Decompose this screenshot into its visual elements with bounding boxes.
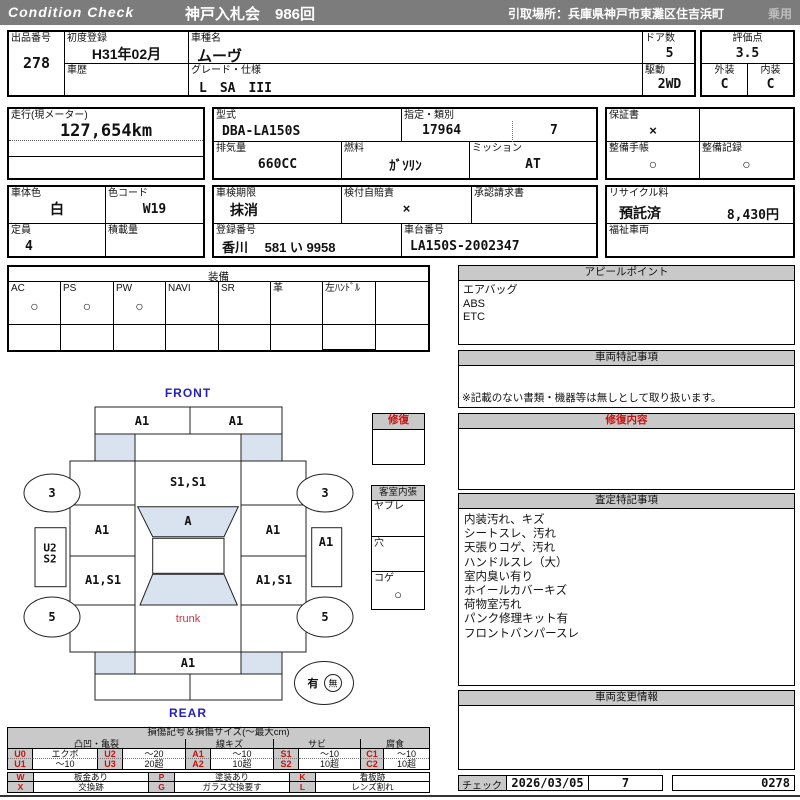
rear-label: REAR xyxy=(169,706,207,720)
field-label: 出品番号 xyxy=(9,32,64,45)
field-label: グレード・仕様 xyxy=(189,64,642,77)
equipment-label: 革 xyxy=(271,282,322,295)
equipment-label xyxy=(376,282,428,284)
field-label: 指定・類別 xyxy=(402,109,596,122)
equipment-cell: 革 xyxy=(271,282,323,325)
divider xyxy=(9,140,203,141)
field-color-code: 色コード W19 xyxy=(106,187,203,224)
equipment-label: AC xyxy=(9,282,60,295)
legend-code: C2 xyxy=(361,759,384,769)
sheet-code-box: 0278 xyxy=(672,775,795,791)
field-label: 整備手帳 xyxy=(607,142,699,155)
field-value: AT xyxy=(525,157,541,172)
field-model-code: 型式 DBA-LA150S xyxy=(214,109,402,142)
field-label: ミッション xyxy=(470,142,596,155)
tools-yes-label: 有 xyxy=(308,675,319,691)
equipment-empty-cell xyxy=(219,325,271,350)
mark-code: P xyxy=(149,773,175,782)
legend-code: U2 xyxy=(98,749,123,759)
mark-text: 塗装あり xyxy=(175,773,290,782)
equipment-label: PW xyxy=(114,282,165,295)
divider xyxy=(9,156,203,157)
front-glass-corner-right xyxy=(241,434,282,461)
field-label: 福祉車両 xyxy=(607,224,793,237)
mark-door-front-right: A1 xyxy=(266,523,280,537)
score-table: 評価点 3.5 外装 C 内装 C xyxy=(700,30,795,97)
field-label: 承認請求書 xyxy=(472,187,596,200)
equipment-empty-cell xyxy=(61,325,114,350)
field-value-2: 7 xyxy=(550,123,558,138)
mark-text: 交換跡 xyxy=(34,782,149,792)
field-label: 内装 xyxy=(748,64,793,77)
field-label: 保証書 xyxy=(607,109,699,122)
repair-mini-box: 修復 xyxy=(372,413,425,465)
field-status: 預託済 xyxy=(619,203,661,223)
mark-code: X xyxy=(8,782,34,792)
field-label: 燃料 xyxy=(342,142,469,155)
panel-title: 車両変更情報 xyxy=(459,691,794,706)
field-value-1: 17964 xyxy=(422,123,461,138)
equipment-title: 装備 xyxy=(9,267,428,282)
check-label: チェック xyxy=(459,776,507,790)
assessment-line: パンク修理キット有 xyxy=(464,612,789,626)
assessment-line: フロントバンパースレ xyxy=(464,627,789,641)
field-value: 3.5 xyxy=(736,46,759,61)
color-table: 車体色 白 色コード W19 定員 4 積載量 xyxy=(7,185,205,258)
rear-glass-corner-right xyxy=(241,652,282,674)
field-label: 車検期限 xyxy=(214,187,341,200)
field-label: 評価点 xyxy=(702,32,793,45)
assessment-line: 室内臭い有り xyxy=(464,570,789,584)
equipment-cell: NAVI xyxy=(166,282,219,325)
assessment-line: 内装汚れ、キズ xyxy=(464,513,789,527)
field-label: 登録番号 xyxy=(214,224,401,237)
legend-group: 線キズ xyxy=(186,739,274,749)
legend-size: 10超 xyxy=(211,759,274,769)
field-value: ○ xyxy=(742,156,750,172)
field-welfare: 福祉車両 xyxy=(607,224,793,256)
field-inspection: 車検期限 抹消 xyxy=(214,187,342,224)
field-value: DBA-LA150S xyxy=(214,124,300,139)
legend-size: エクボ xyxy=(33,749,98,759)
mark-door-front-left: A1 xyxy=(95,523,109,537)
equipment-label: NAVI xyxy=(166,282,218,295)
field-warranty: 保証書 × xyxy=(607,109,700,142)
assessment-line: ハンドルスレ（大） xyxy=(464,556,789,570)
field-label: 車種名 xyxy=(189,32,642,45)
special-notes-panel: 車両特記事項 ※記載のない書類・機器等は無しとして取り扱います。 xyxy=(458,350,795,408)
cabin-row-tear: ヤブレ xyxy=(372,500,424,537)
mark-text: ガラス交換要す xyxy=(175,782,290,792)
front-glass-corner-left xyxy=(95,434,135,461)
mark-code: L xyxy=(290,782,316,792)
repair-marks-table: W 板金あり P 塗装あり K 看板跡 X 交換跡 G ガラス交換要す L レン… xyxy=(7,772,430,793)
bottom-rule xyxy=(0,795,800,797)
change-info-panel: 車両変更情報 xyxy=(458,690,795,770)
field-recycle-fee: リサイクル料 預託済 8,430円 xyxy=(607,187,793,224)
equipment-mark: ○ xyxy=(9,295,60,317)
mark-rear-panel: A1 xyxy=(181,656,195,670)
legend-code: U0 xyxy=(8,749,33,759)
mark-front-bumper-left: A1 xyxy=(135,414,149,428)
mark-front-bumper-right: A1 xyxy=(229,414,243,428)
field-displacement: 排気量 660CC xyxy=(214,142,342,178)
repair-mini-title: 修復 xyxy=(373,414,424,430)
mark-code: G xyxy=(149,782,175,792)
check-row: チェック 2026/03/05 7 xyxy=(458,775,663,791)
legend-code: S1 xyxy=(274,749,299,759)
mileage-box: 走行(現メーター) 127,654km xyxy=(7,107,205,180)
cabin-row-hole: 穴 xyxy=(372,537,424,572)
field-value: × xyxy=(649,123,657,138)
appeal-panel: アピールポイント エアバッグ ABS ETC xyxy=(458,265,795,345)
field-value: L SA III xyxy=(189,81,272,96)
field-value: 白 xyxy=(50,199,64,219)
field-label: 検付自賠責 xyxy=(342,187,471,200)
legend-size: ～10 xyxy=(384,749,429,759)
auction-title: 神戸入札会 986回 xyxy=(185,3,315,24)
rear-bumper-shape xyxy=(95,674,282,700)
equipment-cell: PS ○ xyxy=(61,282,114,325)
field-label: 型式 xyxy=(214,109,401,122)
equipment-mark: ○ xyxy=(61,295,113,317)
mark-code: K xyxy=(290,773,316,782)
panel-title: 査定特記事項 xyxy=(459,494,794,509)
check-label-text: チェック xyxy=(459,781,502,792)
field-value: W19 xyxy=(143,202,166,217)
cabin-row-burn: コゲ ○ xyxy=(372,572,424,609)
field-label: 積載量 xyxy=(106,224,203,237)
field-value: 5 xyxy=(666,46,674,61)
field-label: 車歴 xyxy=(65,64,188,77)
repair-panel: 修復内容 xyxy=(458,413,795,490)
field-value: ｶﾞｿﾘﾝ xyxy=(389,155,422,174)
divider xyxy=(512,121,513,142)
equipment-cell: 左ﾊﾝﾄﾞﾙ xyxy=(323,282,376,325)
appeal-line: エアバッグ xyxy=(463,284,790,298)
field-body-color: 車体色 白 xyxy=(9,187,106,224)
vehicle-category: 乗用 xyxy=(768,5,792,22)
rear-glass-corner-left xyxy=(95,652,135,674)
mark-door-rear-right: A1,S1 xyxy=(256,573,292,587)
inspection-table: 車検期限 抹消 検付自賠責 × 承認請求書 登録番号 香川 581 い 9958… xyxy=(212,185,598,258)
mark-wheel-front-left: 3 xyxy=(48,486,55,500)
field-chassis-number: 車台番号 LA150S-2002347 xyxy=(402,224,596,256)
field-history: 車歴 xyxy=(65,64,189,95)
field-value: 278 xyxy=(23,54,50,72)
roof-panel-shape xyxy=(153,538,224,573)
panel-title: 修復内容 xyxy=(459,414,794,429)
mark-code: W xyxy=(8,773,34,782)
mark-text: レンズ割れ xyxy=(316,782,429,792)
field-value: C xyxy=(767,77,775,92)
check-number-text: 7 xyxy=(622,776,629,790)
legend-size: 20超 xyxy=(123,759,186,769)
field-value: 660CC xyxy=(258,157,297,172)
check-date: 2026/03/05 xyxy=(507,776,589,790)
field-value: 香川 581 い 9958 xyxy=(214,240,335,255)
mark-wheel-rear-right: 5 xyxy=(321,610,328,624)
equipment-cell xyxy=(376,282,428,325)
field-value: C xyxy=(721,77,729,92)
equipment-label: SR xyxy=(219,282,270,295)
field-class-number: 指定・類別 17964 7 xyxy=(402,109,596,142)
legend-code: S2 xyxy=(274,759,299,769)
field-drive: 駆動 2WD xyxy=(643,64,696,95)
mark-right-sill: A1 xyxy=(319,535,333,549)
field-value: 抹消 xyxy=(214,202,258,218)
equipment-empty-cell xyxy=(323,325,376,350)
tools-no-label: 無 xyxy=(328,677,337,690)
mark-text: 看板跡 xyxy=(316,773,429,782)
cabin-lining-box: 客室内張 ヤブレ 穴 コゲ ○ xyxy=(371,485,425,610)
equipment-cell: PW ○ xyxy=(114,282,166,325)
legend-code: C1 xyxy=(361,749,384,759)
field-value: × xyxy=(403,201,411,216)
title-bar: Condition Check 神戸入札会 986回 引取場所：兵庫県神戸市東灘… xyxy=(0,0,800,25)
equipment-label: 左ﾊﾝﾄﾞﾙ xyxy=(323,282,375,295)
field-value: 4 xyxy=(9,239,33,254)
equipment-empty-cell xyxy=(9,325,61,350)
field-fuel: 燃料 ｶﾞｿﾘﾝ xyxy=(342,142,470,178)
field-grade: グレード・仕様 L SA III xyxy=(189,64,643,95)
mark-door-rear-left: A1,S1 xyxy=(85,573,121,587)
equipment-cell: AC ○ xyxy=(9,282,61,325)
equipment-empty-cell xyxy=(114,325,166,350)
cabin-row-mark: ○ xyxy=(372,585,424,603)
sheet-code: 0278 xyxy=(761,776,794,790)
legend-size: 10超 xyxy=(299,759,361,769)
legend-size: ～10 xyxy=(211,749,274,759)
equipment-label: PS xyxy=(61,282,113,295)
field-registration-number: 登録番号 香川 581 い 9958 xyxy=(214,224,402,256)
brand-title: Condition Check xyxy=(8,4,134,20)
field-transmission: ミッション AT xyxy=(470,142,596,178)
field-label: 排気量 xyxy=(214,142,341,155)
front-label: FRONT xyxy=(165,386,211,400)
field-load: 積載量 xyxy=(106,224,203,256)
field-label: 整備記録 xyxy=(700,142,793,155)
equipment-empty-cell xyxy=(166,325,219,350)
legend-group: サビ xyxy=(274,739,361,749)
equipment-table: 装備 AC ○ PS ○ PW ○ NAVI SR 革 左ﾊﾝﾄﾞﾙ xyxy=(7,265,430,352)
cabin-row-label: コゲ xyxy=(372,572,424,585)
legend-code: U1 xyxy=(8,759,33,769)
assessment-line: 荷物室汚れ xyxy=(464,598,789,612)
field-maintenance-record: 整備記録 ○ xyxy=(700,142,793,178)
legend-group: 腐食 xyxy=(361,739,429,749)
field-label: 定員 xyxy=(9,224,105,237)
legend-group: 凸凹・亀裂 xyxy=(8,739,186,749)
rear-window-shape xyxy=(140,574,237,605)
field-exterior-grade: 外装 C xyxy=(702,64,748,95)
field-insurance: 検付自賠責 × xyxy=(342,187,472,224)
legend-code: A1 xyxy=(186,749,211,759)
legend-size: 10超 xyxy=(384,759,429,769)
pickup-location: 引取場所：兵庫県神戸市東灘区住吉浜町 xyxy=(508,5,724,22)
field-label: 色コード xyxy=(106,187,203,200)
mark-wheel-front-right: 3 xyxy=(321,486,328,500)
field-approval: 承認請求書 xyxy=(472,187,596,224)
assessment-line: 天張りコゲ、汚れ xyxy=(464,541,789,555)
appeal-line: ETC xyxy=(463,311,790,325)
engine-table: 型式 DBA-LA150S 指定・類別 17964 7 排気量 660CC 燃料… xyxy=(212,107,598,180)
panel-title: アピールポイント xyxy=(459,266,794,281)
mileage-value: 127,654km xyxy=(60,121,152,141)
field-score: 評価点 3.5 xyxy=(702,32,793,64)
legend-size: ～10 xyxy=(33,759,98,769)
cabin-row-mark xyxy=(372,513,424,531)
auction-sheet: { "header": { "brand": "Condition Check"… xyxy=(0,0,800,800)
equipment-cell: SR xyxy=(219,282,271,325)
field-lot-number: 出品番号 278 xyxy=(9,32,65,95)
empty-cell xyxy=(700,109,793,142)
car-diagram: FRONT REAR A1 A1 S1,S1 A1 A A1 A1,S1 A1,… xyxy=(0,385,460,730)
basic-info-table: 出品番号 278 初度登録 H31年02月 車歴 車種名 ムーヴ グレード・仕様… xyxy=(7,30,696,97)
field-label: リサイクル料 xyxy=(607,187,793,200)
equipment-empty-cell xyxy=(271,325,323,350)
field-label: 外装 xyxy=(702,64,747,77)
special-note: ※記載のない書類・機器等は無しとして取り扱います。 xyxy=(462,390,721,405)
check-date-text: 2026/03/05 xyxy=(511,776,583,790)
assessment-line: ホイールカバーキズ xyxy=(464,584,789,598)
mark-windshield: S1,S1 xyxy=(170,475,206,489)
check-number: 7 xyxy=(589,776,662,790)
assessment-line: シートスレ、汚れ xyxy=(464,527,789,541)
field-capacity: 定員 4 xyxy=(9,224,106,256)
field-value: 2WD xyxy=(658,77,681,92)
assessment-panel: 査定特記事項 内装汚れ、キズ シートスレ、汚れ 天張りコゲ、汚れ ハンドルスレ（… xyxy=(458,493,795,686)
field-value: ○ xyxy=(649,156,657,172)
field-label: 駆動 xyxy=(643,64,696,77)
mark-roof: A xyxy=(184,514,191,528)
mark-left-sill-2: S2 xyxy=(43,553,56,566)
field-first-registration: 初度登録 H31年02月 xyxy=(65,32,189,64)
documents-table: 保証書 × 整備手帳 ○ 整備記録 ○ xyxy=(605,107,795,180)
mark-wheel-rear-left: 5 xyxy=(48,610,55,624)
field-value: LA150S-2002347 xyxy=(402,239,520,254)
legend-code: U3 xyxy=(98,759,123,769)
field-value: H31年02月 xyxy=(92,44,161,64)
recycle-table: リサイクル料 預託済 8,430円 福祉車両 xyxy=(605,185,795,258)
cabin-row-mark xyxy=(372,550,424,566)
front-bumper-shape xyxy=(95,407,282,434)
field-value: ムーヴ xyxy=(189,48,242,65)
legend-size: ～10 xyxy=(299,749,361,759)
mark-text: 板金あり xyxy=(34,773,149,782)
panel-title: 車両特記事項 xyxy=(459,351,794,366)
field-doors: ドア数 5 xyxy=(643,32,696,64)
appeal-line: ABS xyxy=(463,298,790,312)
field-maintenance-book: 整備手帳 ○ xyxy=(607,142,700,178)
field-model-name: 車種名 ムーヴ xyxy=(189,32,643,64)
legend-code: A2 xyxy=(186,759,211,769)
field-label: 車台番号 xyxy=(402,224,596,237)
cabin-row-label: 穴 xyxy=(372,537,424,550)
cabin-row-label: ヤブレ xyxy=(372,500,424,513)
equipment-mark: ○ xyxy=(114,295,165,317)
damage-legend-table: 損傷記号＆損傷サイズ(～最大cm) 凸凹・亀裂 線キズ サビ 腐食 U0 エクボ… xyxy=(7,727,430,770)
cabin-lining-title: 客室内張 xyxy=(372,486,424,501)
field-label: ドア数 xyxy=(643,32,696,45)
field-amount: 8,430円 xyxy=(727,204,779,223)
trunk-label: trunk xyxy=(176,613,200,625)
legend-size: ～20 xyxy=(123,749,186,759)
field-interior-grade: 内装 C xyxy=(748,64,793,95)
